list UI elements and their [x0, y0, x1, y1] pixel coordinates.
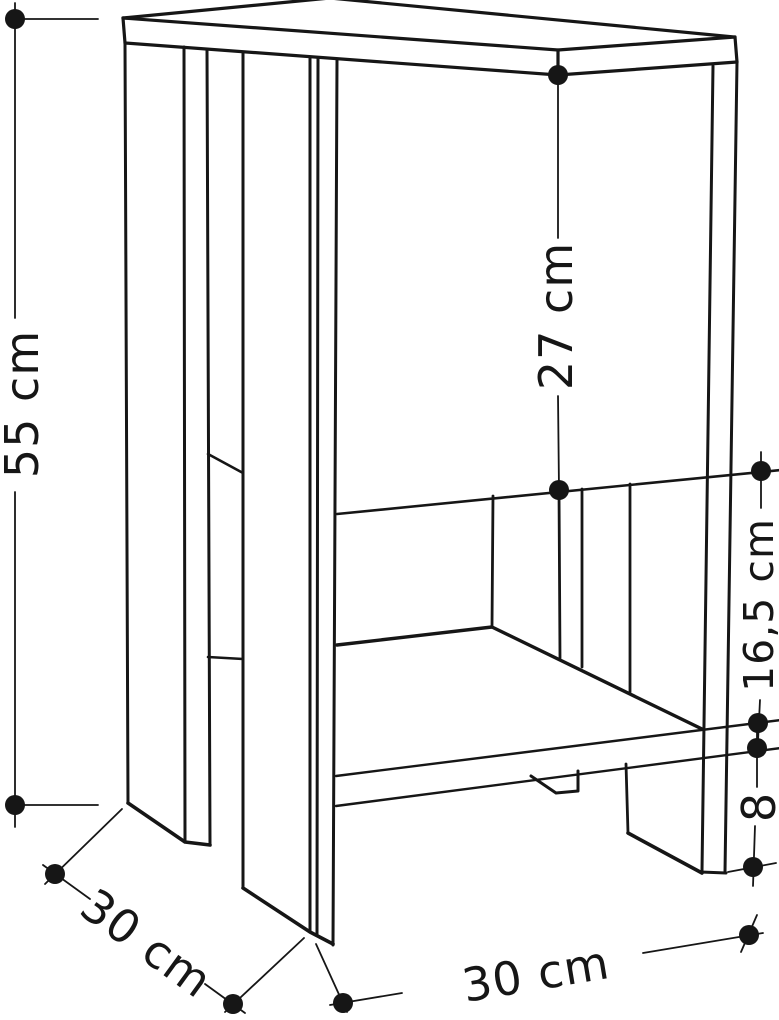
bottom-shelf	[336, 627, 779, 806]
dim-dot	[223, 994, 243, 1014]
dim-dot	[549, 480, 569, 500]
right-front-leg	[701, 62, 737, 873]
dim-dot	[333, 993, 353, 1013]
dim-dot	[751, 461, 771, 481]
dim-dot	[548, 65, 568, 85]
dim-dot	[45, 864, 65, 884]
label-shelf-gap: 16,5 cm	[735, 518, 779, 692]
nightstand-drawing: 55 cm 27 cm 16,5 cm 8 30 cm 30 cm	[0, 0, 779, 1020]
dim-dot	[748, 713, 768, 733]
label-leg-height: 8	[732, 792, 779, 822]
dim-dot	[747, 738, 767, 758]
label-total-height: 55 cm	[0, 330, 49, 478]
dimension-diagram: 55 cm 27 cm 16,5 cm 8 30 cm 30 cm	[0, 0, 779, 1020]
tabletop	[123, 0, 737, 75]
dimension-labels: 55 cm 27 cm 16,5 cm 8 30 cm 30 cm	[0, 242, 779, 1013]
dim-dot	[739, 925, 759, 945]
dim-dot	[743, 857, 763, 877]
label-opening-height: 27 cm	[529, 242, 583, 390]
furniture-outline	[123, 0, 779, 945]
label-depth: 30 cm	[71, 878, 223, 1009]
dim-dot	[5, 795, 25, 815]
left-side-panel	[125, 43, 337, 945]
dim-dot	[5, 9, 25, 29]
label-width: 30 cm	[458, 935, 613, 1013]
